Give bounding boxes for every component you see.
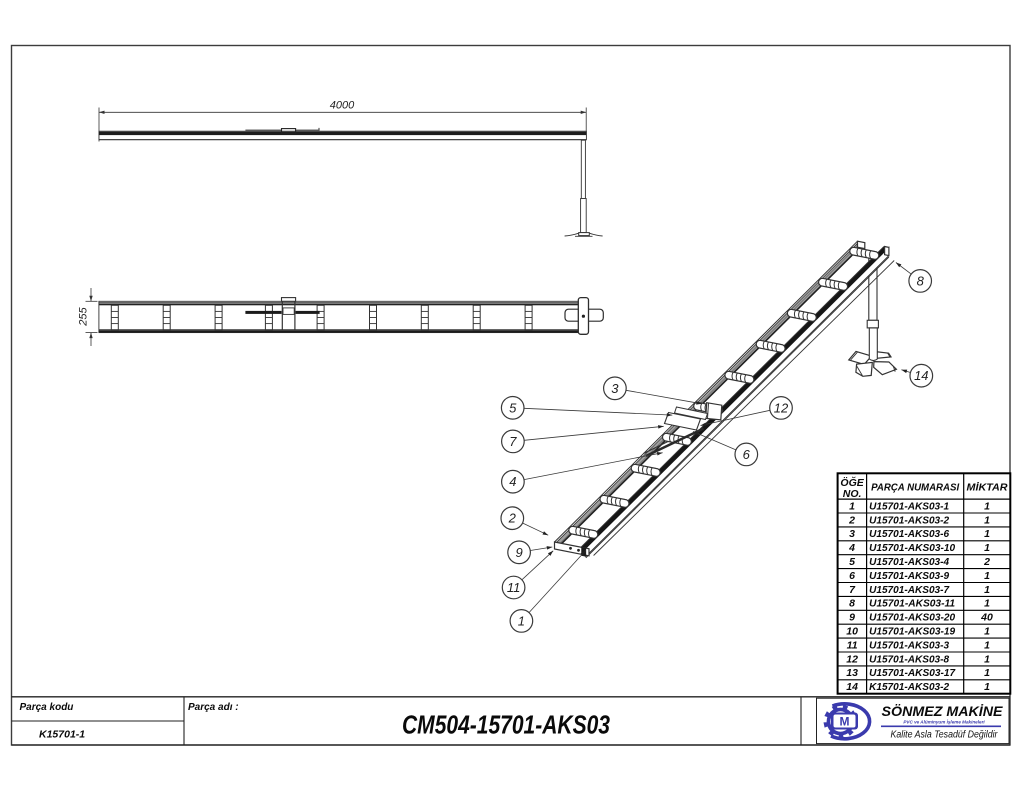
svg-text:2: 2 [508, 511, 517, 526]
svg-text:1: 1 [984, 639, 990, 651]
svg-text:U15701-AKS03-10: U15701-AKS03-10 [869, 542, 955, 554]
svg-text:U15701-AKS03-17: U15701-AKS03-17 [869, 667, 956, 679]
svg-text:U15701-AKS03-1: U15701-AKS03-1 [869, 500, 949, 512]
svg-text:CM504-15701-AKS03: CM504-15701-AKS03 [402, 710, 610, 740]
svg-text:6: 6 [743, 447, 751, 462]
svg-text:1: 1 [984, 681, 990, 693]
svg-text:40: 40 [980, 612, 993, 624]
svg-text:PVC ve Alüminyum İşleme Makine: PVC ve Alüminyum İşleme Makineleri [903, 719, 985, 725]
svg-text:U15701-AKS03-3: U15701-AKS03-3 [869, 639, 949, 651]
svg-text:Parça kodu: Parça kodu [20, 702, 74, 713]
svg-text:8: 8 [917, 273, 925, 288]
svg-text:2: 2 [848, 514, 855, 526]
svg-text:9: 9 [515, 545, 522, 560]
svg-text:1: 1 [984, 570, 990, 582]
svg-text:5: 5 [849, 556, 855, 568]
svg-text:11: 11 [507, 580, 521, 595]
svg-text:255: 255 [78, 306, 90, 326]
svg-text:5: 5 [509, 400, 517, 415]
svg-text:1: 1 [984, 500, 990, 512]
svg-text:Parça adı :: Parça adı : [188, 702, 239, 713]
svg-text:U15701-AKS03-8: U15701-AKS03-8 [869, 653, 949, 665]
svg-text:9: 9 [849, 612, 855, 624]
svg-text:U15701-AKS03-19: U15701-AKS03-19 [869, 626, 955, 638]
svg-text:1: 1 [984, 598, 990, 610]
svg-text:4: 4 [509, 474, 516, 489]
svg-text:11: 11 [847, 639, 858, 651]
svg-text:U15701-AKS03-2: U15701-AKS03-2 [869, 514, 949, 526]
svg-text:1: 1 [518, 613, 525, 628]
svg-text:U15701-AKS03-11: U15701-AKS03-11 [869, 598, 955, 610]
svg-text:K15701-1: K15701-1 [39, 729, 85, 741]
svg-text:Kalite Asla Tesadüf Değildir: Kalite Asla Tesadüf Değildir [891, 730, 999, 741]
svg-text:1: 1 [849, 500, 855, 512]
svg-text:1: 1 [984, 584, 990, 596]
svg-text:U15701-AKS03-9: U15701-AKS03-9 [869, 570, 949, 582]
svg-text:3: 3 [611, 381, 619, 396]
svg-text:MİKTAR: MİKTAR [967, 481, 1008, 494]
svg-text:14: 14 [914, 368, 928, 383]
svg-text:NO.: NO. [843, 488, 862, 500]
svg-text:6: 6 [849, 570, 855, 582]
svg-text:4: 4 [848, 542, 855, 554]
svg-text:1: 1 [984, 667, 990, 679]
svg-text:1: 1 [984, 626, 990, 638]
svg-text:3: 3 [849, 528, 855, 540]
svg-text:U15701-AKS03-4: U15701-AKS03-4 [869, 556, 949, 568]
svg-text:13: 13 [846, 667, 858, 679]
svg-text:2: 2 [983, 556, 990, 568]
svg-text:PARÇA NUMARASI: PARÇA NUMARASI [871, 482, 960, 494]
svg-text:K15701-AKS03-2: K15701-AKS03-2 [869, 681, 949, 693]
svg-text:M: M [840, 715, 850, 729]
svg-text:12: 12 [774, 400, 789, 415]
svg-text:10: 10 [846, 626, 858, 638]
svg-text:1: 1 [984, 653, 990, 665]
svg-text:SÖNMEZ MAKİNE: SÖNMEZ MAKİNE [882, 704, 1004, 719]
svg-text:14: 14 [846, 681, 858, 693]
svg-text:1: 1 [984, 542, 990, 554]
svg-text:U15701-AKS03-7: U15701-AKS03-7 [869, 584, 950, 596]
svg-text:7: 7 [509, 434, 517, 449]
svg-text:12: 12 [846, 653, 858, 665]
svg-text:U15701-AKS03-6: U15701-AKS03-6 [869, 528, 949, 540]
svg-text:4000: 4000 [330, 100, 355, 112]
svg-text:U15701-AKS03-20: U15701-AKS03-20 [869, 612, 955, 624]
svg-text:1: 1 [984, 528, 990, 540]
svg-text:8: 8 [849, 598, 855, 610]
svg-text:1: 1 [984, 514, 990, 526]
